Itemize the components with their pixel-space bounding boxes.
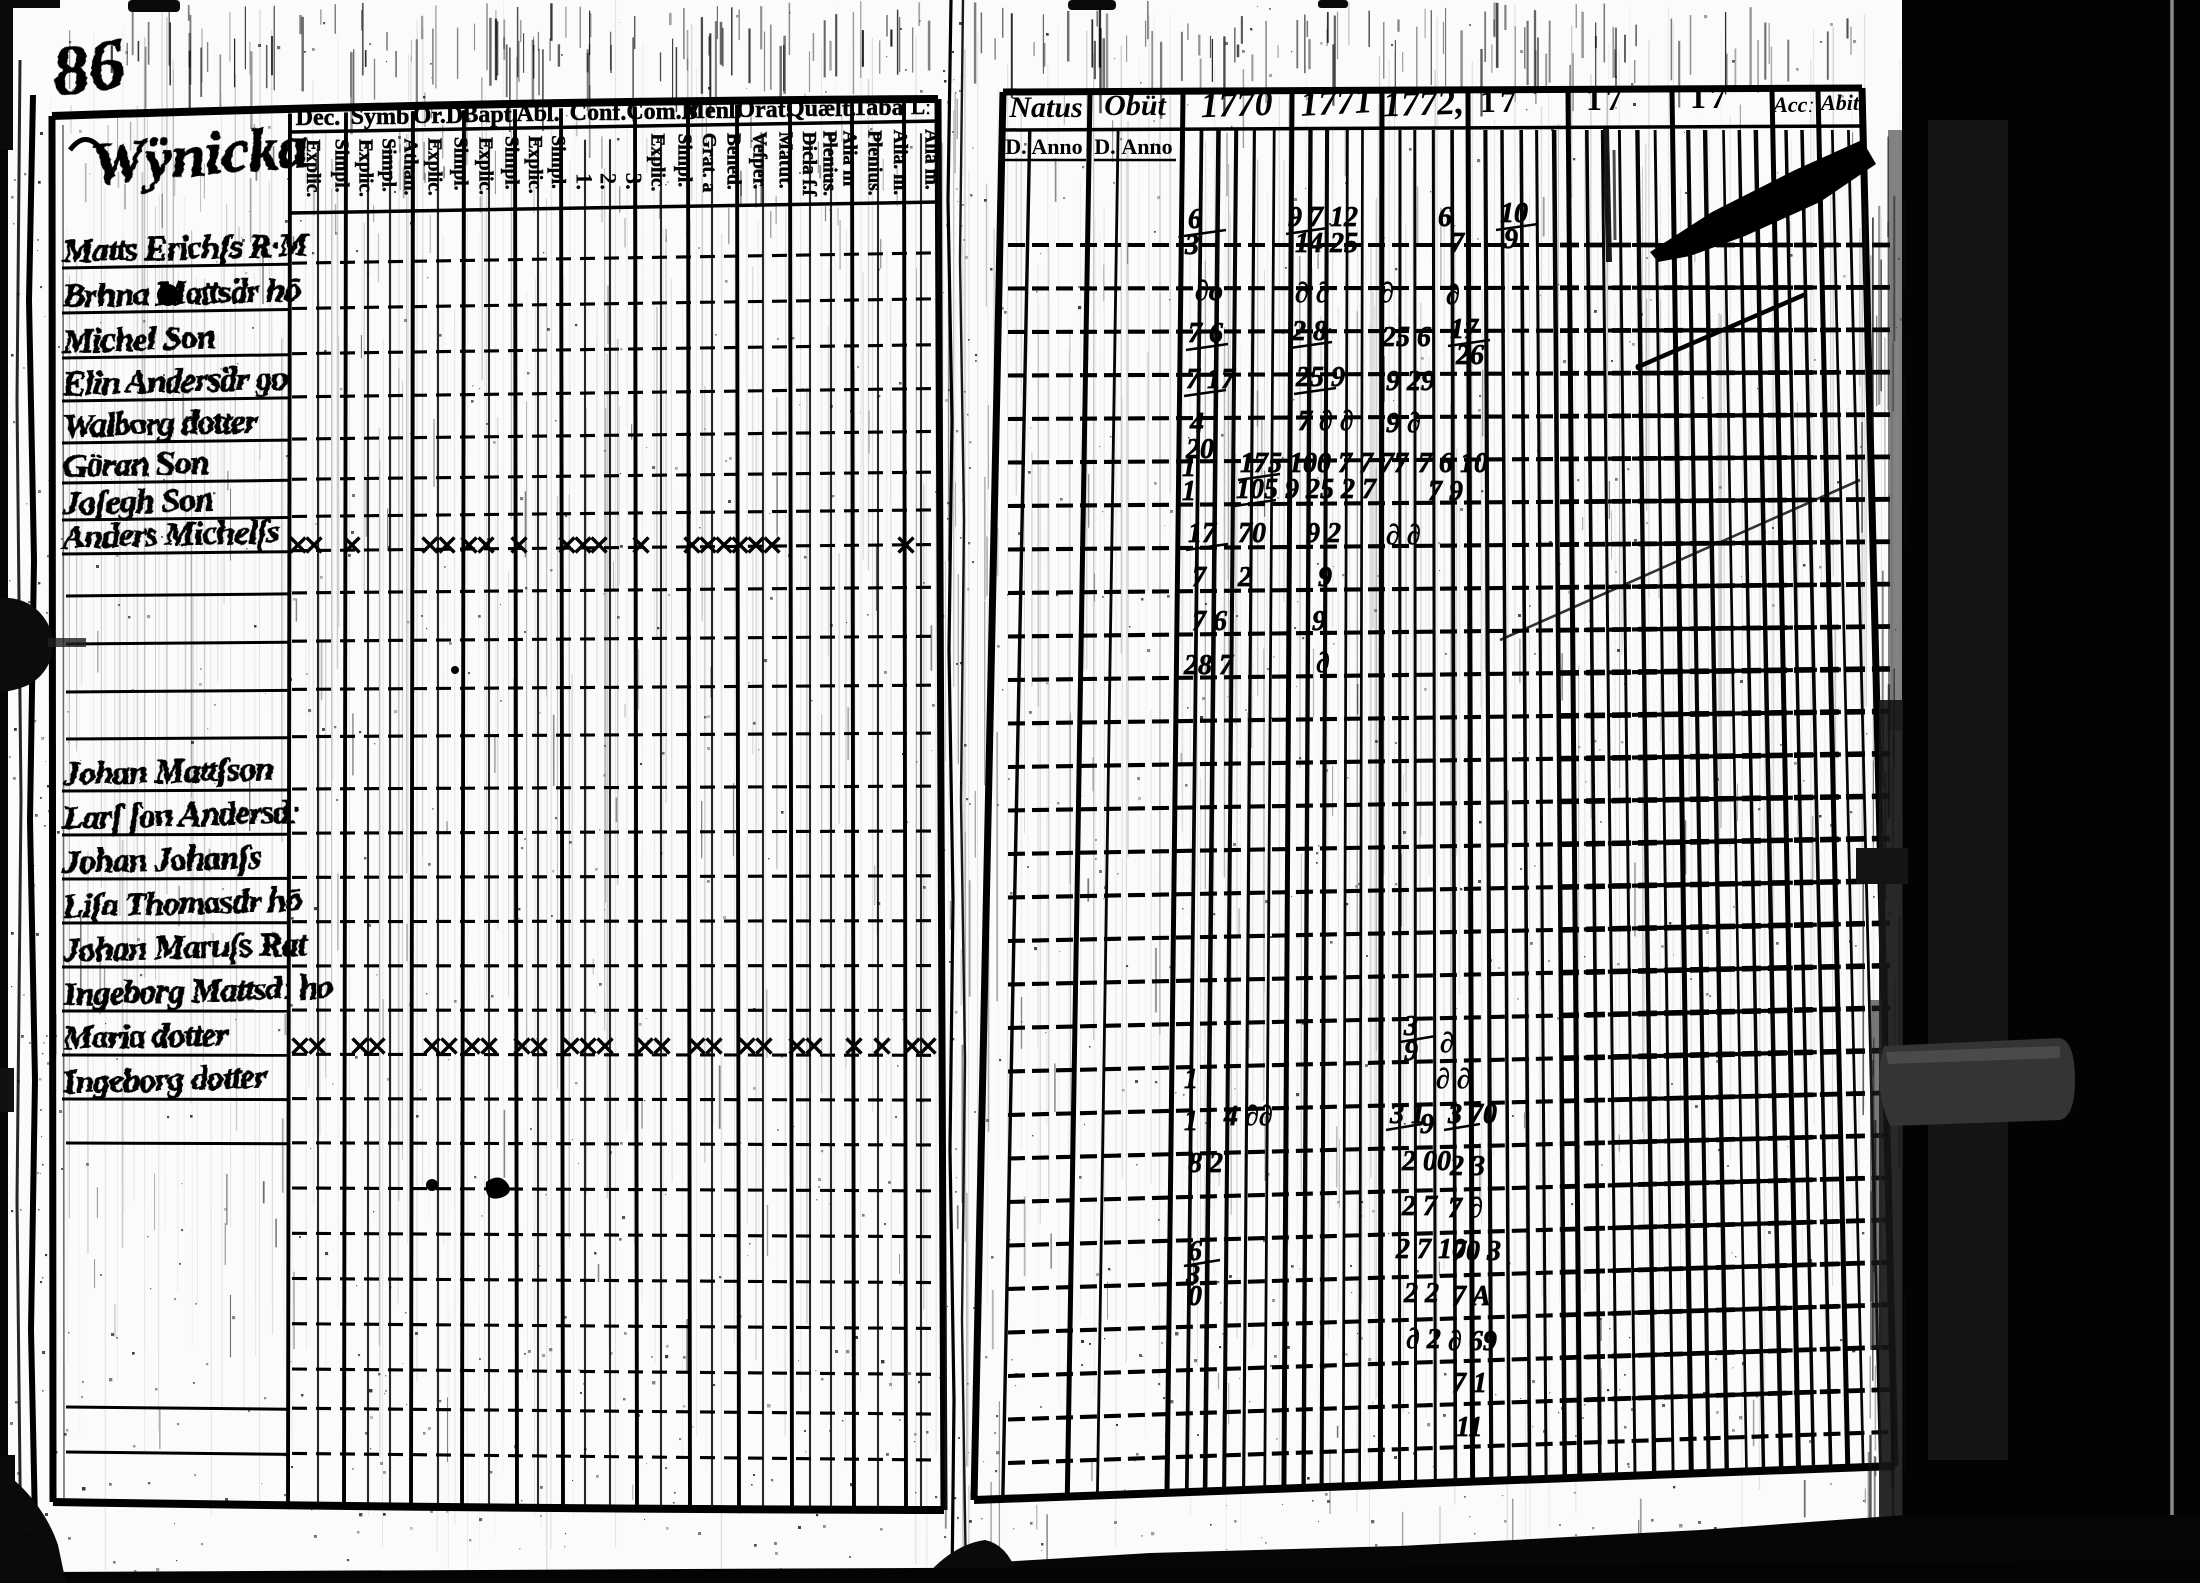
svg-text:9 ∂: 9 ∂ [1386, 408, 1421, 439]
svg-text:7 9: 7 9 [1428, 476, 1463, 507]
svg-text:Elin Andersḋr go: Elin Andersḋr go [60, 359, 286, 402]
svg-text:70 3: 70 3 [1452, 1236, 1501, 1267]
svg-text:14 25: 14 25 [1295, 228, 1358, 259]
svg-text:9: 9 [1312, 606, 1326, 637]
svg-text:86: 86 [46, 22, 128, 111]
svg-text:4 ∂∂: 4 ∂∂ [1223, 1101, 1273, 1132]
svg-text:Anders Michelſs: Anders Michelſs [59, 512, 279, 555]
svg-text:0: 0 [1188, 1281, 1202, 1312]
svg-text:∂ ∂: ∂ ∂ [1295, 278, 1330, 309]
svg-text:2 3: 2 3 [1449, 1151, 1485, 1182]
svg-text:Simpl.: Simpl. [331, 139, 352, 193]
svg-text:Explic.: Explic. [524, 136, 545, 194]
svg-text:Maria dotter: Maria dotter [60, 1015, 228, 1056]
svg-text:Explic.: Explic. [646, 133, 667, 191]
svg-text:Explic.: Explic. [355, 139, 376, 197]
svg-text:Accː: Accː [1771, 92, 1815, 117]
svg-text:Explic.: Explic. [475, 137, 496, 195]
svg-text:11: 11 [1456, 1412, 1482, 1443]
svg-text:Simpl.: Simpl. [501, 136, 522, 190]
svg-text:∂: ∂ [1440, 1028, 1454, 1059]
svg-text:Veſper.: Veſper. [749, 132, 770, 190]
svg-text:Orat.: Orat. [736, 97, 791, 123]
svg-text:70: 70 [1238, 518, 1266, 549]
svg-text:9: 9 [1420, 1109, 1434, 1140]
svg-text:25 6: 25 6 [1381, 322, 1431, 353]
svg-text:Taba: Taba [852, 95, 903, 121]
svg-text:Menſ.: Menſ. [682, 98, 741, 124]
svg-text:Matut.: Matut. [775, 132, 796, 189]
svg-text:Alia m: Alia m [839, 130, 860, 186]
svg-text:∂ 69: ∂ 69 [1448, 1326, 1497, 1357]
svg-text:Göran Son: Göran Son [61, 443, 207, 484]
svg-text:∂: ∂ [1380, 278, 1394, 309]
svg-text:Plenius.: Plenius. [863, 130, 884, 196]
svg-text:1771: 1771 [1299, 80, 1373, 124]
svg-text:9: 9 [1318, 562, 1332, 593]
svg-text:∂ 2: ∂ 2 [1406, 1324, 1441, 1355]
svg-text:Simpl.: Simpl. [673, 133, 694, 187]
svg-text:1: 1 [1184, 1064, 1198, 1095]
svg-text:Anno: Anno [1031, 134, 1082, 159]
svg-text:Ingeborg Mattsdː ho: Ingeborg Mattsdː ho [60, 968, 332, 1012]
svg-text:Michel Son: Michel Son [60, 318, 214, 359]
svg-text:Simpl.: Simpl. [450, 137, 471, 191]
svg-text:Matts Erichſs R·M: Matts Erichſs R·M [60, 226, 309, 269]
svg-text:Abit: Abit [1819, 90, 1860, 115]
svg-text:1: 1 [1184, 1106, 1198, 1137]
svg-text:Obüt: Obüt [1104, 89, 1167, 122]
svg-text:9 29: 9 29 [1386, 366, 1435, 397]
svg-text:∂ ∂: ∂ ∂ [1386, 520, 1421, 551]
svg-text:D.: D. [1094, 134, 1115, 159]
svg-text:Johan Maruſs Rat: Johan Maruſs Rat [60, 925, 307, 968]
svg-text:Bapt.: Bapt. [462, 102, 517, 128]
svg-text:7 ∂ ∂: 7 ∂ ∂ [1298, 406, 1354, 437]
svg-text:2: 2 [1237, 562, 1252, 593]
svg-text:Conf.: Conf. [570, 100, 627, 126]
svg-text:17: 17 [1586, 81, 1626, 117]
svg-text:7 A: 7 A [1452, 1281, 1491, 1312]
svg-text:17: 17 [1690, 79, 1730, 115]
svg-text:7 17: 7 17 [1186, 364, 1236, 395]
svg-text:7 1: 7 1 [1452, 1368, 1487, 1399]
svg-text:Larſ ſon Andersdː: Larſ ſon Andersdː [60, 793, 299, 836]
svg-text:Walborg dotter: Walborg dotter [61, 402, 258, 444]
svg-text:17: 17 [1188, 518, 1217, 549]
svg-text:Natus: Natus [1008, 91, 1082, 124]
svg-text:2.: 2. [596, 173, 621, 190]
svg-text:Grat. a: Grat. a [698, 133, 719, 193]
svg-text:Johan Mattſson: Johan Mattſson [60, 750, 272, 793]
svg-text:7 ∂: 7 ∂ [1448, 1193, 1483, 1224]
svg-text:1770: 1770 [1200, 83, 1273, 125]
svg-text:Lː: Lː [911, 95, 931, 119]
svg-text:Johan Johanſs: Johan Johanſs [60, 838, 260, 880]
svg-text:7 6 10: 7 6 10 [1418, 448, 1488, 479]
svg-text:1: 1 [1182, 476, 1196, 507]
svg-text:Liſa Thomasdr hō: Liſa Thomasdr hō [60, 881, 301, 924]
svg-text:105 9 25 2 7: 105 9 25 2 7 [1236, 474, 1377, 505]
svg-text:17: 17 [1480, 83, 1520, 119]
svg-text:Explic.: Explic. [423, 138, 444, 196]
svg-text:Ingeborg dotter: Ingeborg dotter [60, 1058, 267, 1100]
svg-text:2 2: 2 2 [1403, 1278, 1439, 1309]
svg-text:3.: 3. [621, 173, 646, 190]
svg-text:∂: ∂ [1446, 280, 1460, 311]
svg-text:7: 7 [1192, 562, 1207, 593]
svg-text:Anno: Anno [1121, 134, 1172, 159]
svg-text:Alia. m.: Alia. m. [889, 130, 910, 196]
svg-text:8 2: 8 2 [1188, 1148, 1223, 1179]
svg-text:Simpl.: Simpl. [547, 135, 568, 189]
svg-text:2 00: 2 00 [1401, 1146, 1451, 1177]
svg-text:1.: 1. [571, 173, 596, 190]
svg-text:7: 7 [1450, 228, 1465, 259]
svg-text:Symb: Symb [351, 104, 410, 130]
svg-text:D.: D. [1005, 134, 1026, 159]
svg-text:28 7: 28 7 [1183, 650, 1234, 681]
svg-text:9 2: 9 2 [1306, 518, 1341, 549]
svg-text:25 9: 25 9 [1295, 362, 1345, 393]
svg-text:∂: ∂ [1316, 648, 1330, 679]
svg-text:Simpl.: Simpl. [378, 138, 399, 192]
svg-text:Bened.: Bened. [722, 133, 743, 190]
svg-text:∂o: ∂o [1195, 276, 1223, 307]
svg-text:∂ ∂: ∂ ∂ [1436, 1064, 1471, 1095]
svg-text:Brhna Mattsḋr hō: Brhna Mattsḋr hō [60, 271, 299, 314]
svg-text:2 7: 2 7 [1401, 1191, 1438, 1222]
svg-text:7 6: 7 6 [1192, 606, 1227, 637]
svg-text:Athan.: Athan. [400, 139, 421, 196]
svg-text:Or.D: Or.D [413, 103, 463, 129]
svg-text:Dicla ſ.ſ: Dicla ſ.ſ [798, 131, 819, 196]
svg-text:1772,: 1772, [1382, 82, 1464, 125]
svg-text:Plenius.: Plenius. [818, 130, 839, 196]
svg-text:Abſ.: Abſ. [516, 101, 559, 127]
svg-text:Quæſt.: Quæſt. [786, 96, 856, 122]
